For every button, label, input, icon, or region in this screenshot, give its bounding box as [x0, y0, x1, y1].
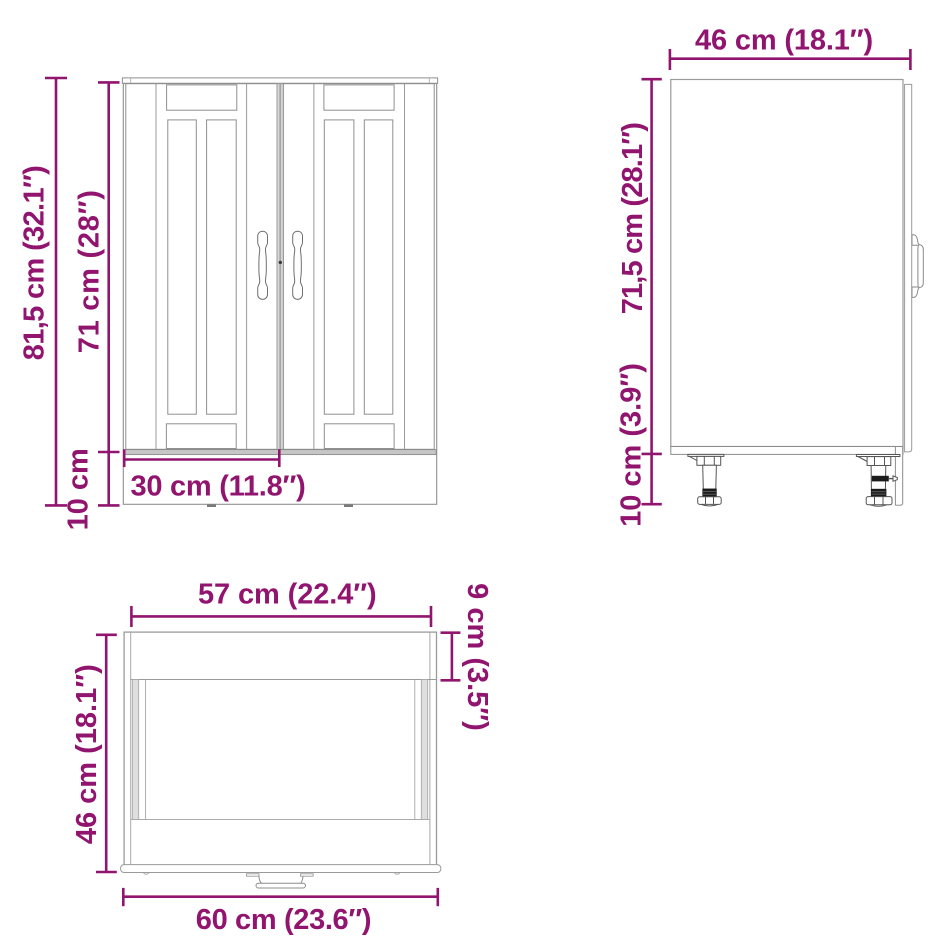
svg-text:10 cm: 10 cm — [63, 448, 95, 530]
svg-text:46 cm (18.1″): 46 cm (18.1″) — [71, 664, 103, 844]
svg-text:60 cm (23.6″): 60 cm (23.6″) — [196, 904, 371, 936]
svg-text:81,5 cm (32.1″): 81,5 cm (32.1″) — [19, 166, 51, 360]
svg-text:71 cm (28″): 71 cm (28″) — [74, 189, 106, 353]
svg-text:9 cm (3.5″): 9 cm (3.5″) — [461, 583, 493, 731]
svg-text:10 cm (3.9″): 10 cm (3.9″) — [616, 363, 648, 527]
svg-text:46 cm (18.1″): 46 cm (18.1″) — [695, 25, 873, 57]
svg-text:71,5 cm (28.1″): 71,5 cm (28.1″) — [617, 123, 649, 315]
svg-text:30 cm (11.8″): 30 cm (11.8″) — [130, 471, 305, 503]
svg-text:57 cm (22.4″): 57 cm (22.4″) — [198, 579, 377, 611]
